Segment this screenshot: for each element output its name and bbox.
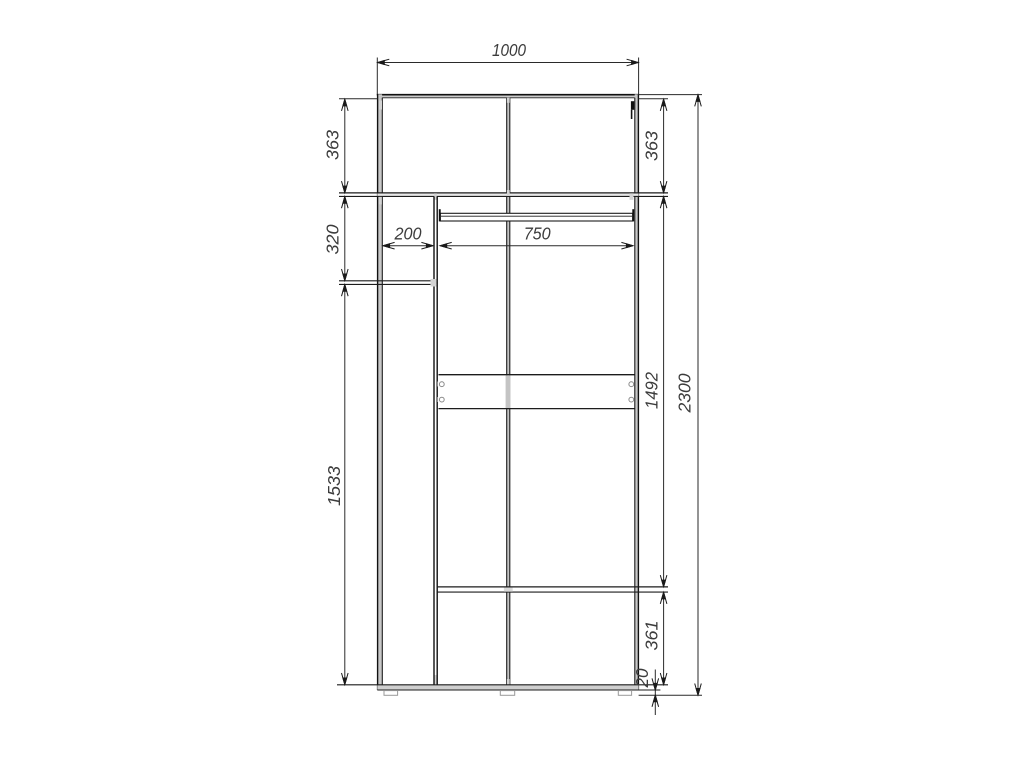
svg-text:750: 750 <box>524 224 551 244</box>
svg-text:320: 320 <box>323 224 343 254</box>
svg-text:1000: 1000 <box>492 40 526 60</box>
svg-text:363: 363 <box>642 131 662 161</box>
svg-text:2300: 2300 <box>675 373 695 413</box>
svg-text:1492: 1492 <box>642 372 662 409</box>
svg-text:20: 20 <box>632 668 652 688</box>
svg-text:1533: 1533 <box>324 466 344 506</box>
svg-text:363: 363 <box>323 130 343 160</box>
svg-text:361: 361 <box>642 621 662 651</box>
svg-text:200: 200 <box>394 224 422 244</box>
